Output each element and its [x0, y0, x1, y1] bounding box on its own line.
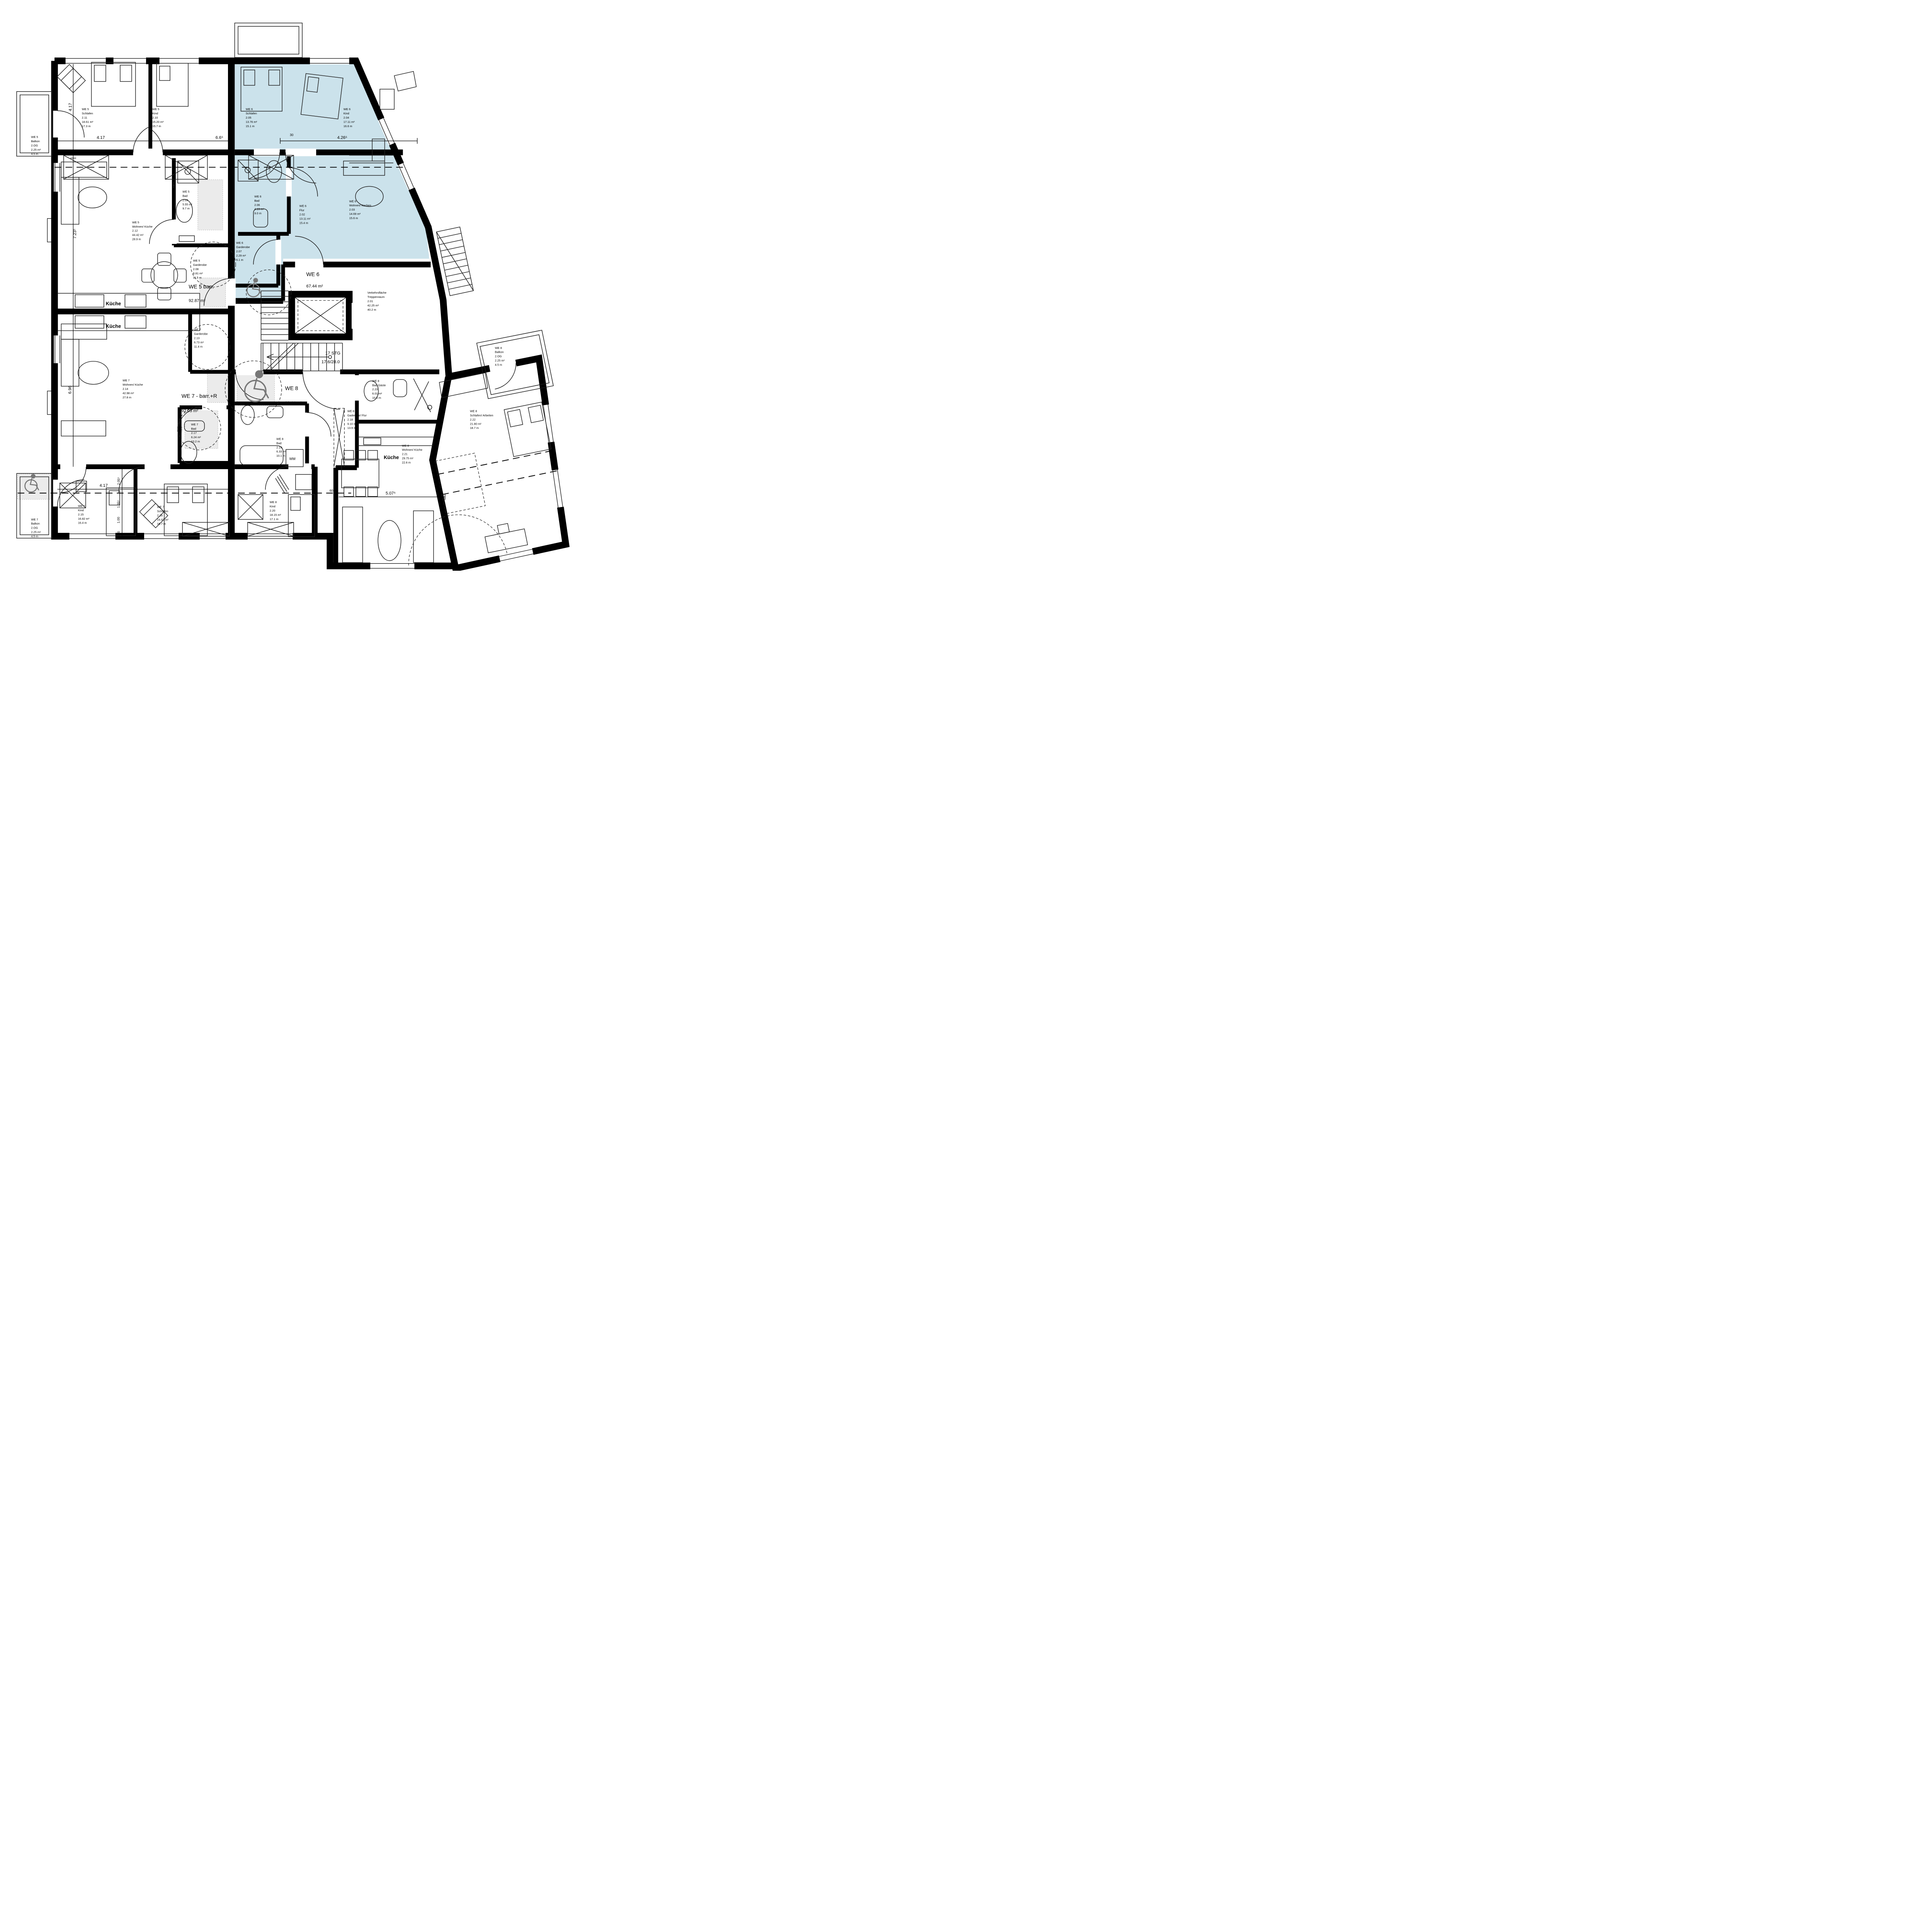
- dim-5075: 5.07⁵: [386, 491, 396, 496]
- label-we8-kind: WE 8Kind2.2018.15 m²17.1 m: [270, 500, 281, 521]
- label-we8-badgaeste: WE 8Bad Gäste2.236.01 m²10.5 m: [372, 379, 386, 400]
- label-we5-wohnen: WE 5Wohnen/ Küche2.1244.42 m²28.9 m: [132, 221, 153, 241]
- dim-60: 60: [330, 488, 333, 492]
- dim-1355: 1.35⁵: [117, 500, 121, 508]
- elevator-shaft: [288, 291, 355, 340]
- door-gaps: [58, 111, 516, 506]
- floor-plan-drawing: WE 5Balkon2.OG2.25 m²4.5 m WE 5Schlafen2…: [0, 0, 580, 571]
- area-we7: 92.03 m²: [182, 409, 198, 413]
- dim-696: 6.96: [68, 386, 73, 394]
- dim-7235: 7.23⁵: [73, 229, 77, 239]
- label-hkv-3: HKV: [180, 426, 183, 432]
- dim-417-vert: 4.17: [68, 103, 73, 111]
- label-we5-bad: WE 5Bad2.095.55 m²9.7 m: [182, 190, 192, 211]
- title-we8: WE 8: [285, 385, 298, 391]
- dim-100: 1.00: [117, 517, 121, 524]
- title-we6: WE 6: [306, 271, 320, 277]
- title-we5: WE 5 barr.: [189, 284, 214, 290]
- label-we7-schlafen: WE 7Schlafen2.1616.97 m²16.7 m: [157, 505, 168, 526]
- label-hkv-1: HKV: [172, 182, 175, 188]
- dim-417-top: 4.17: [97, 136, 105, 140]
- label-stairwell: VerkehrsflächeTreppenraum2.0142.25 m²40.…: [367, 291, 386, 311]
- label-we7-kind: WE 7Kind2.1516.82 m²16.4 m: [78, 504, 90, 525]
- label-kueche-we5: Küche: [106, 301, 121, 306]
- label-kueche-we7: Küche: [106, 323, 121, 329]
- label-we8-wohnen: WE 8Wohnen/ Küche2.2129.75 m²22.6 m: [402, 444, 422, 464]
- label-we8-schlafen: WE 8Schlafen/ Arbeiten2.2221.80 m²18.7 m: [470, 410, 493, 430]
- dim-2055: 2.05⁵: [117, 477, 121, 485]
- label-we7-wohnen: WE 7Wohnen/ Küche2.1442.98 m²27.8 m: [122, 379, 143, 399]
- dim-665: 6.6⁵: [216, 136, 223, 140]
- label-we5-kind: WE 5Kind2.1015.20 m²15.7 m: [152, 107, 164, 128]
- label-wm: WM: [289, 457, 296, 461]
- dim-4265: 4.26⁵: [337, 136, 347, 140]
- label-we5-garderobe: WE 5Garderobe2.086.81 m²11.5 m: [193, 259, 207, 279]
- area-we6: 67.44 m²: [306, 284, 323, 289]
- label-stg2: 17.6/28.0: [321, 360, 340, 364]
- label-stg1: 17 STG: [325, 351, 340, 356]
- label-kueche-we8: Küche: [384, 454, 399, 460]
- label-we8-bad: WE 8Bad2.196.33 m²10.1 m: [276, 437, 286, 457]
- area-we5: 92.87 m²: [189, 298, 205, 303]
- label-we7-garderobe: WE 7Garderobe2.136.73 m²11.4 m: [194, 328, 208, 349]
- dim-90: 90: [117, 531, 121, 535]
- title-we7: WE 7 - barr.+R: [182, 393, 217, 399]
- label-we5-schlafen: WE 5Schlafen2.1118.61 m²17.3 m: [82, 107, 94, 128]
- dim-417-bottom: 4.17: [100, 483, 108, 488]
- floor-plan-page: WE 5Balkon2.OG2.25 m²4.5 m WE 5Schlafen2…: [0, 0, 580, 571]
- dim-30: 30: [290, 133, 294, 137]
- label-hkv-2: HKV: [268, 166, 271, 172]
- area-we8: 93.44 m²: [285, 401, 302, 406]
